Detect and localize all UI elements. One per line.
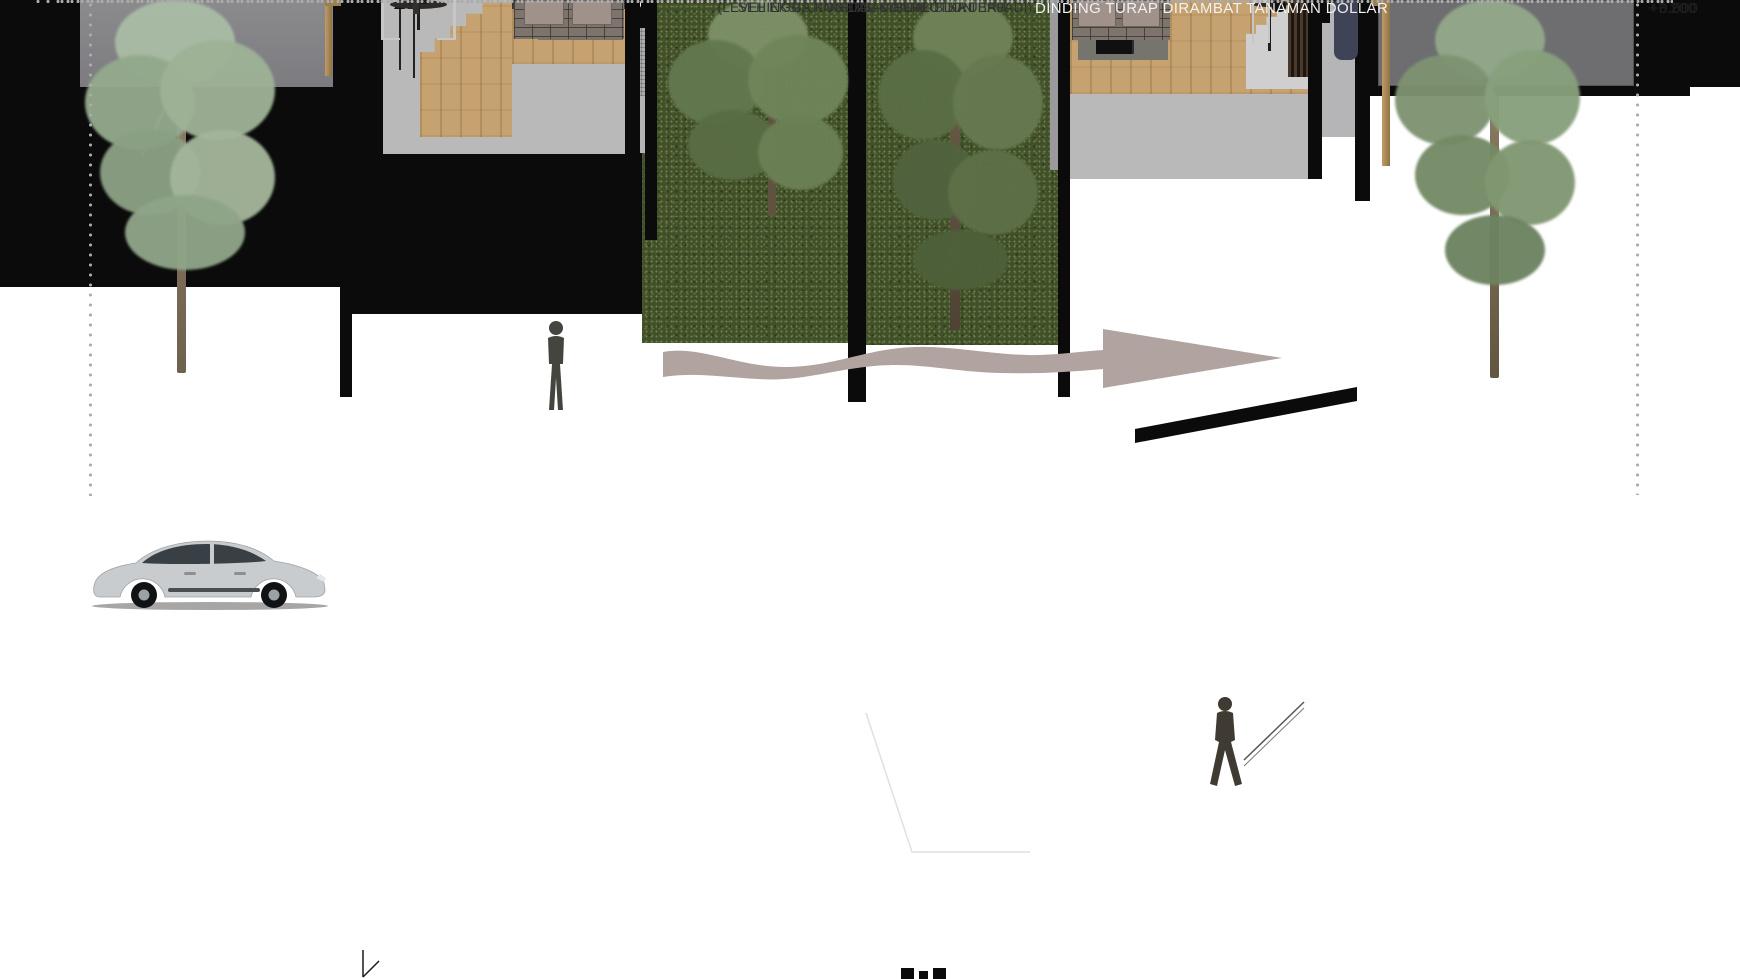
stair-rail xyxy=(1244,702,1304,760)
left-house-roof-end-post xyxy=(558,231,574,258)
elevation-label-0000: +0.000 xyxy=(1650,0,1698,17)
left-house-roof xyxy=(340,193,567,245)
visual-connection-arrow xyxy=(663,329,1282,388)
stair-rail xyxy=(1244,708,1304,766)
left-house-right-parapet xyxy=(645,193,657,233)
cutoff-mark xyxy=(919,971,928,979)
cutoff-mark xyxy=(901,968,914,979)
boundary-line-right xyxy=(1636,0,1639,495)
boundary-line-left xyxy=(89,0,92,496)
wall-note-label: DINDING TURAP DIRAMBAT TANAMAN DOLLAR xyxy=(1035,0,1388,17)
right-house-roof xyxy=(1135,387,1357,443)
cutoff-mark xyxy=(363,950,379,977)
annotation-level-note-2: SEHINGGA KONEKSI VISUAL BISA TERJADI) xyxy=(738,0,1033,15)
wall-note-leader-line xyxy=(866,713,1030,852)
drawing-overlay xyxy=(0,0,1740,979)
cutoff-mark xyxy=(933,968,946,979)
section-drawing: VISUAL CONNECTION (LEVEL EKSISTING TIDAK… xyxy=(0,0,1740,979)
